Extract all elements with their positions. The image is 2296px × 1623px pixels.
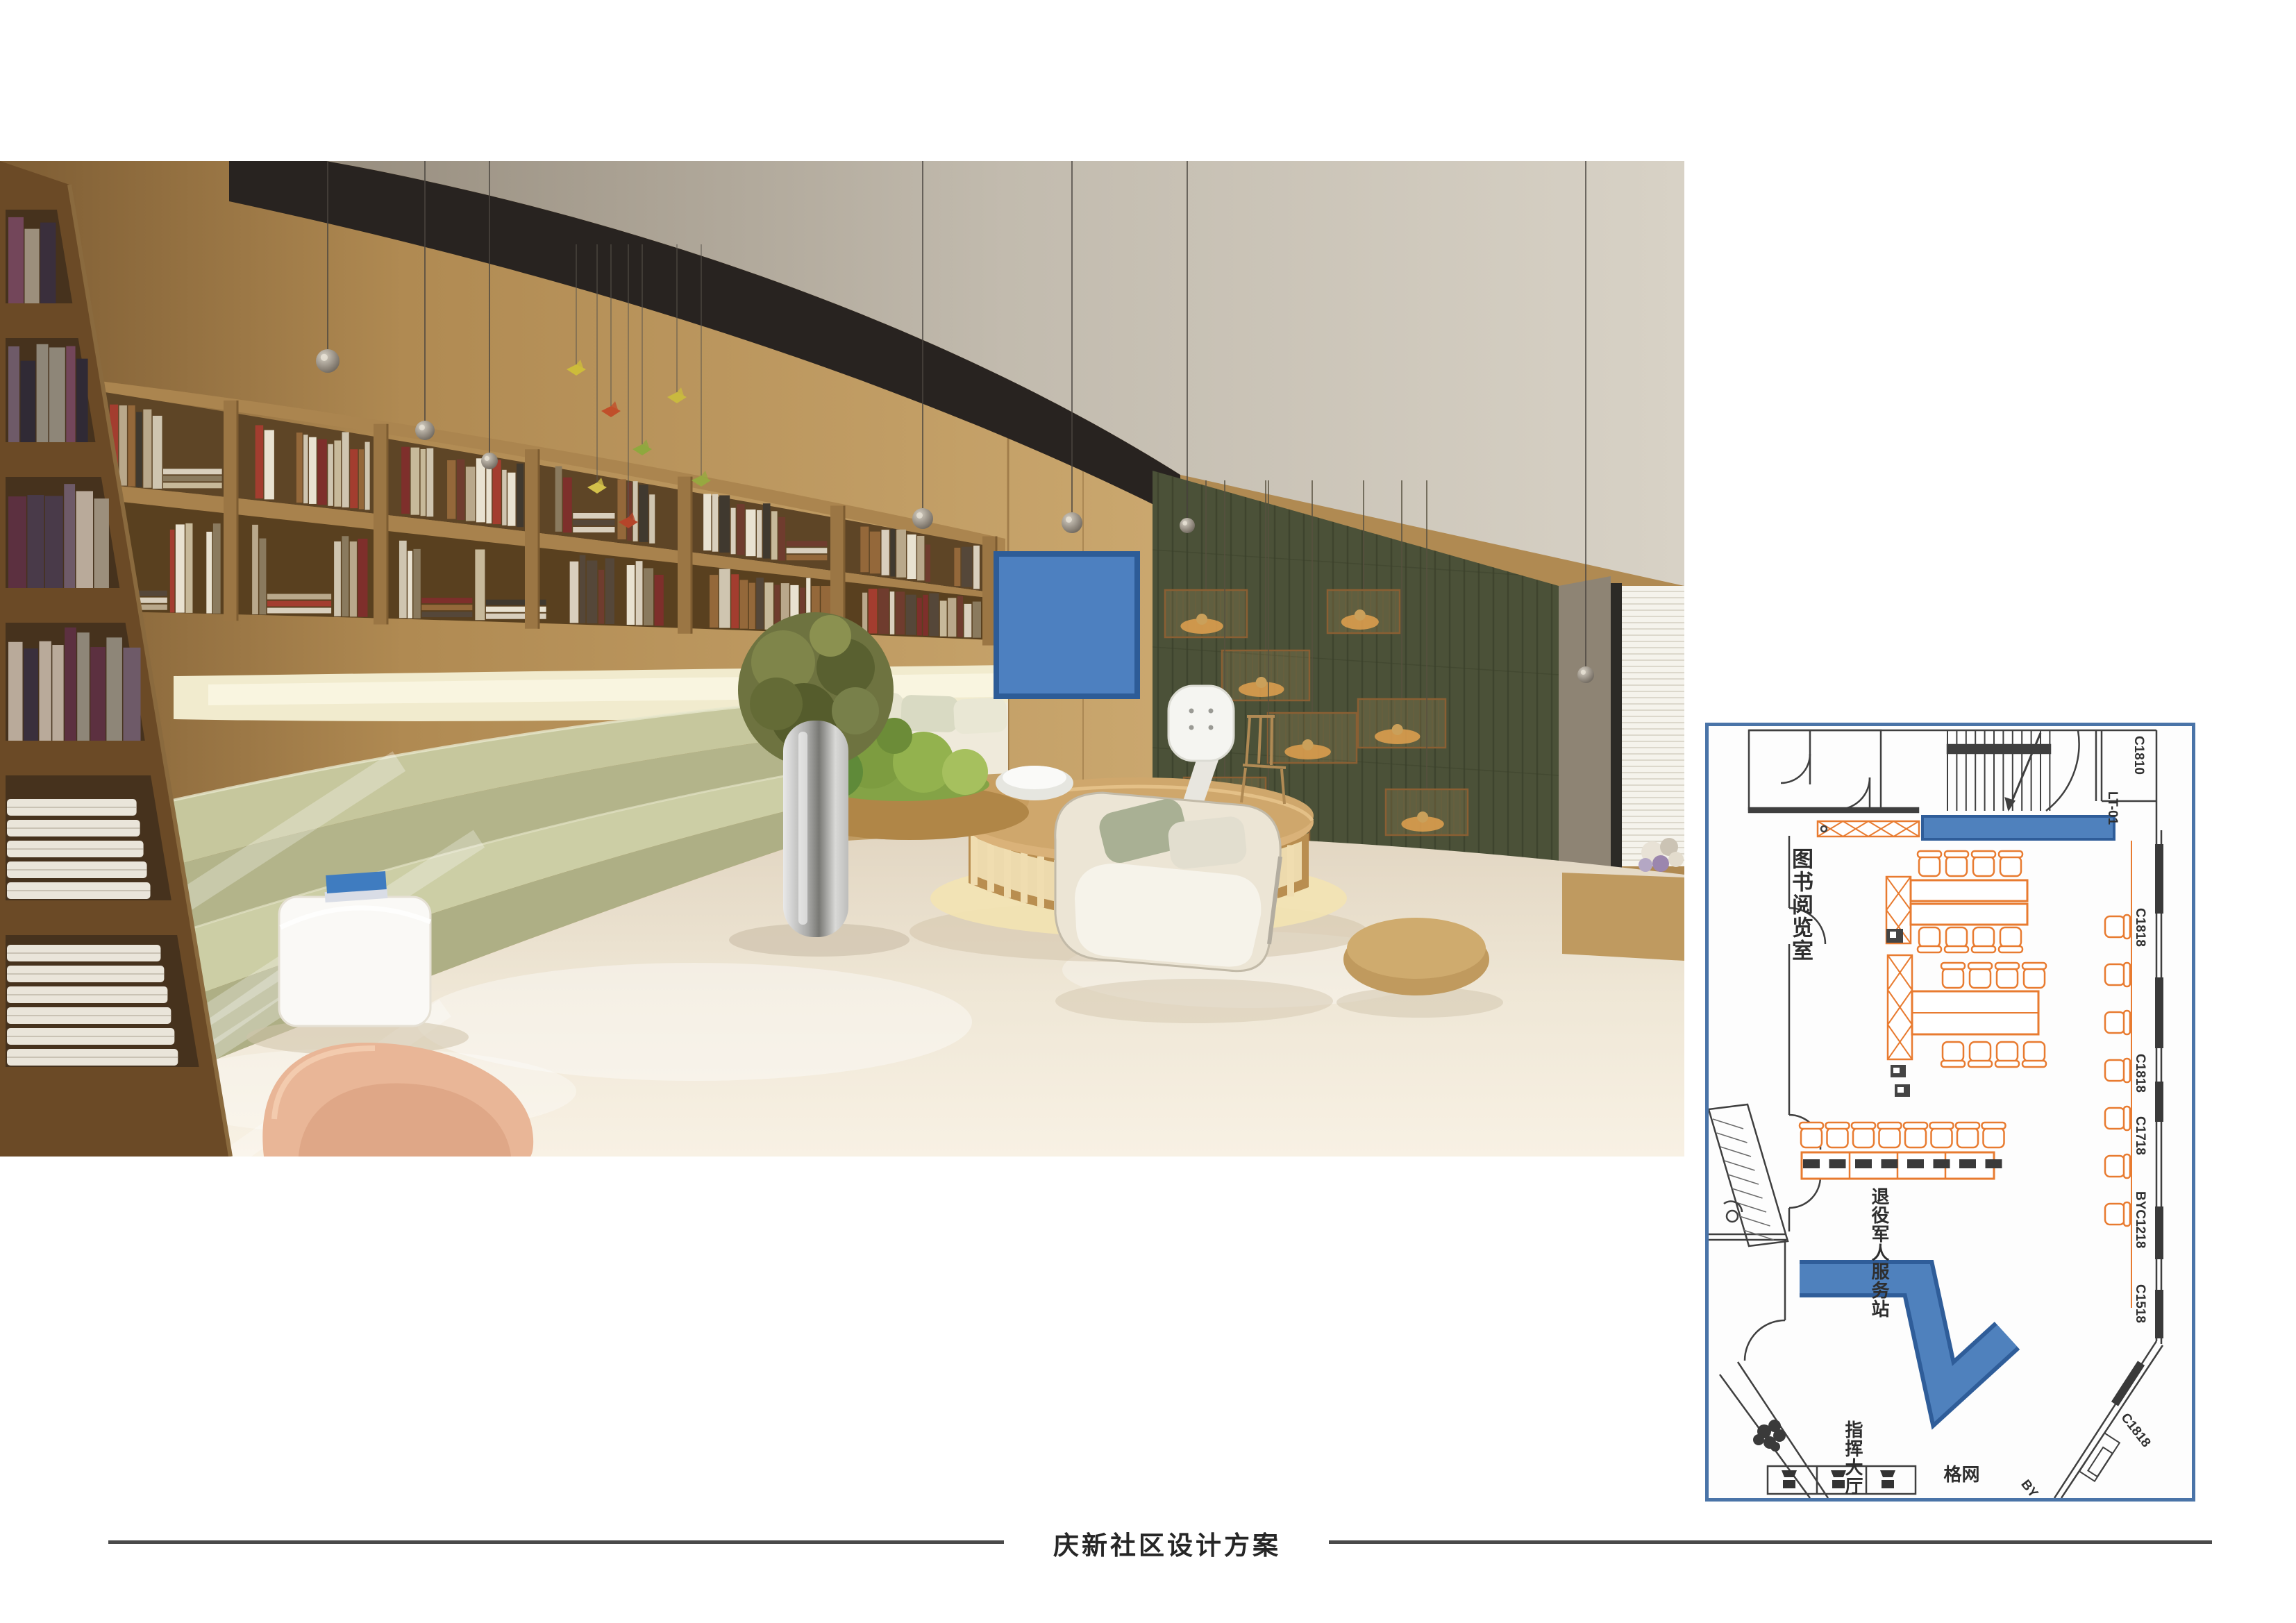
plan-highlight-zone — [1800, 1279, 2007, 1394]
interior-photo — [0, 161, 1684, 1157]
side-cabinet — [1562, 873, 1684, 961]
page-title: 庆新社区设计方案 — [1000, 1524, 1334, 1562]
plan-plant — [1753, 1420, 1786, 1452]
floor-plan: 图书阅览室 退役军人服务站 指挥大厅 网格 C1810 LT-01 C1818 … — [1705, 723, 2195, 1502]
window-frame — [1611, 583, 1622, 869]
coffee-table — [279, 897, 430, 1026]
plan-area-label: 退役军人服务站 — [1870, 1187, 1888, 1318]
plan-dim-label: C1810 — [2131, 736, 2146, 775]
plan-room-label: 图书阅览室 — [1789, 848, 1811, 962]
plan-furniture — [1800, 821, 2131, 1308]
lounge-chair — [1055, 793, 1280, 971]
round-pouf — [1343, 918, 1489, 995]
plan-dim-label: C1518 — [2132, 1284, 2147, 1323]
plan-dim-label: BYC1218 — [2132, 1191, 2147, 1248]
plan-dim-label: C1818 — [2132, 908, 2147, 947]
plan-dim-label: C1818 — [2132, 1054, 2147, 1093]
photo-highlight-overlay — [996, 554, 1137, 696]
design-proposal-page: 图书阅览室 退役军人服务站 指挥大厅 网格 C1810 LT-01 C1818 … — [0, 0, 2296, 1623]
interior-rendering — [0, 161, 1684, 1157]
plan-hall-label: 指挥大厅 — [1843, 1420, 1861, 1495]
side-wall — [1559, 576, 1611, 873]
silver-vase — [783, 721, 848, 937]
plan-grid-label: 网格 — [1942, 1465, 1978, 1498]
title-rule-left — [108, 1540, 1004, 1544]
window — [1622, 586, 1684, 866]
plan-dim-label: LT-01 — [2104, 791, 2120, 825]
plan-dim-label: C1718 — [2132, 1116, 2147, 1155]
plan-highlight-bar — [1922, 816, 2114, 839]
title-rule-right — [1329, 1540, 2212, 1544]
blue-books — [325, 871, 388, 902]
